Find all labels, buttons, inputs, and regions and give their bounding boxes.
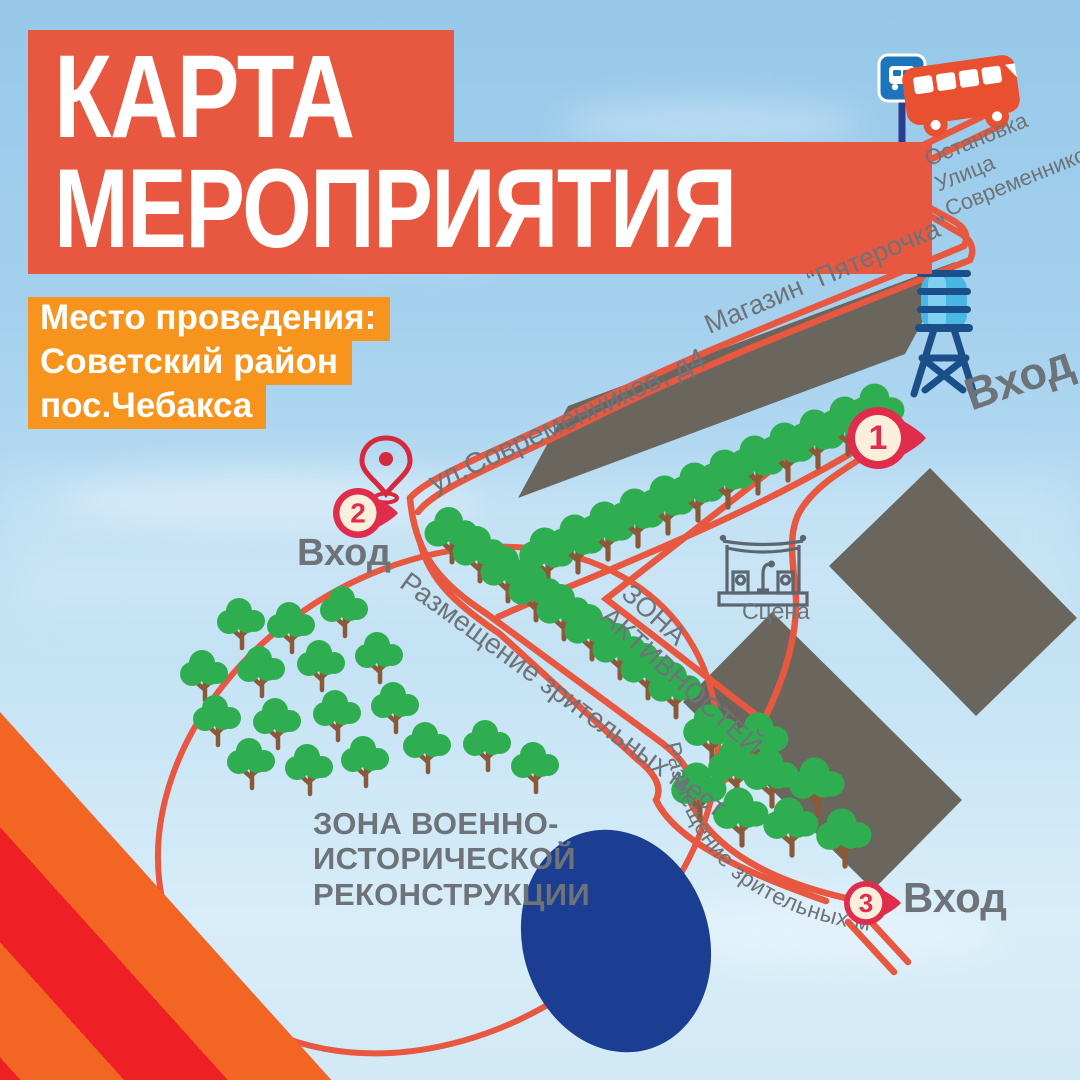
entrance-marker-2-number: 2: [350, 498, 366, 529]
tree-icon: [313, 690, 361, 740]
page-title-line2: МЕРОПРИЯТИЯ: [28, 142, 932, 274]
building-upper-right: [829, 468, 1077, 716]
tree-icon: [193, 695, 241, 745]
venue-line3: пос.Чебакса: [28, 385, 266, 429]
tree-icon: [355, 632, 403, 682]
venue-line1: Место проведения:: [28, 297, 390, 341]
tree-icon: [237, 646, 285, 696]
tree-icon: [227, 738, 275, 788]
tree-icon: [403, 722, 451, 772]
entrance-marker-1: 1: [847, 407, 926, 469]
tree-icon: [297, 640, 345, 690]
tree-icon: [285, 744, 333, 794]
venue-badge: Место проведения: Советский район пос.Че…: [28, 297, 390, 429]
tree-icon: [511, 742, 559, 792]
tree-icon: [253, 698, 301, 748]
venue-line2: Советский район: [28, 341, 352, 385]
entrance-3-label: Вход: [903, 874, 1007, 922]
reconstruction-zone-label: ЗОНА ВОЕННО- ИСТОРИЧЕСКОЙ РЕКОНСТРУКЦИИ: [313, 806, 590, 912]
entrance-marker-3: 3: [844, 881, 901, 925]
entrance-marker-1-number: 1: [869, 419, 888, 457]
tree-icon: [217, 598, 265, 648]
stage-label: Сцена: [742, 598, 810, 625]
tree-icon: [341, 736, 389, 786]
entrance-2-label: Вход: [297, 532, 391, 575]
event-map-poster: Размещение зрительных мест: [0, 0, 1080, 1080]
tree-icon: [371, 682, 419, 732]
tree-icon: [463, 720, 511, 770]
entrance-marker-3-number: 3: [859, 888, 873, 918]
